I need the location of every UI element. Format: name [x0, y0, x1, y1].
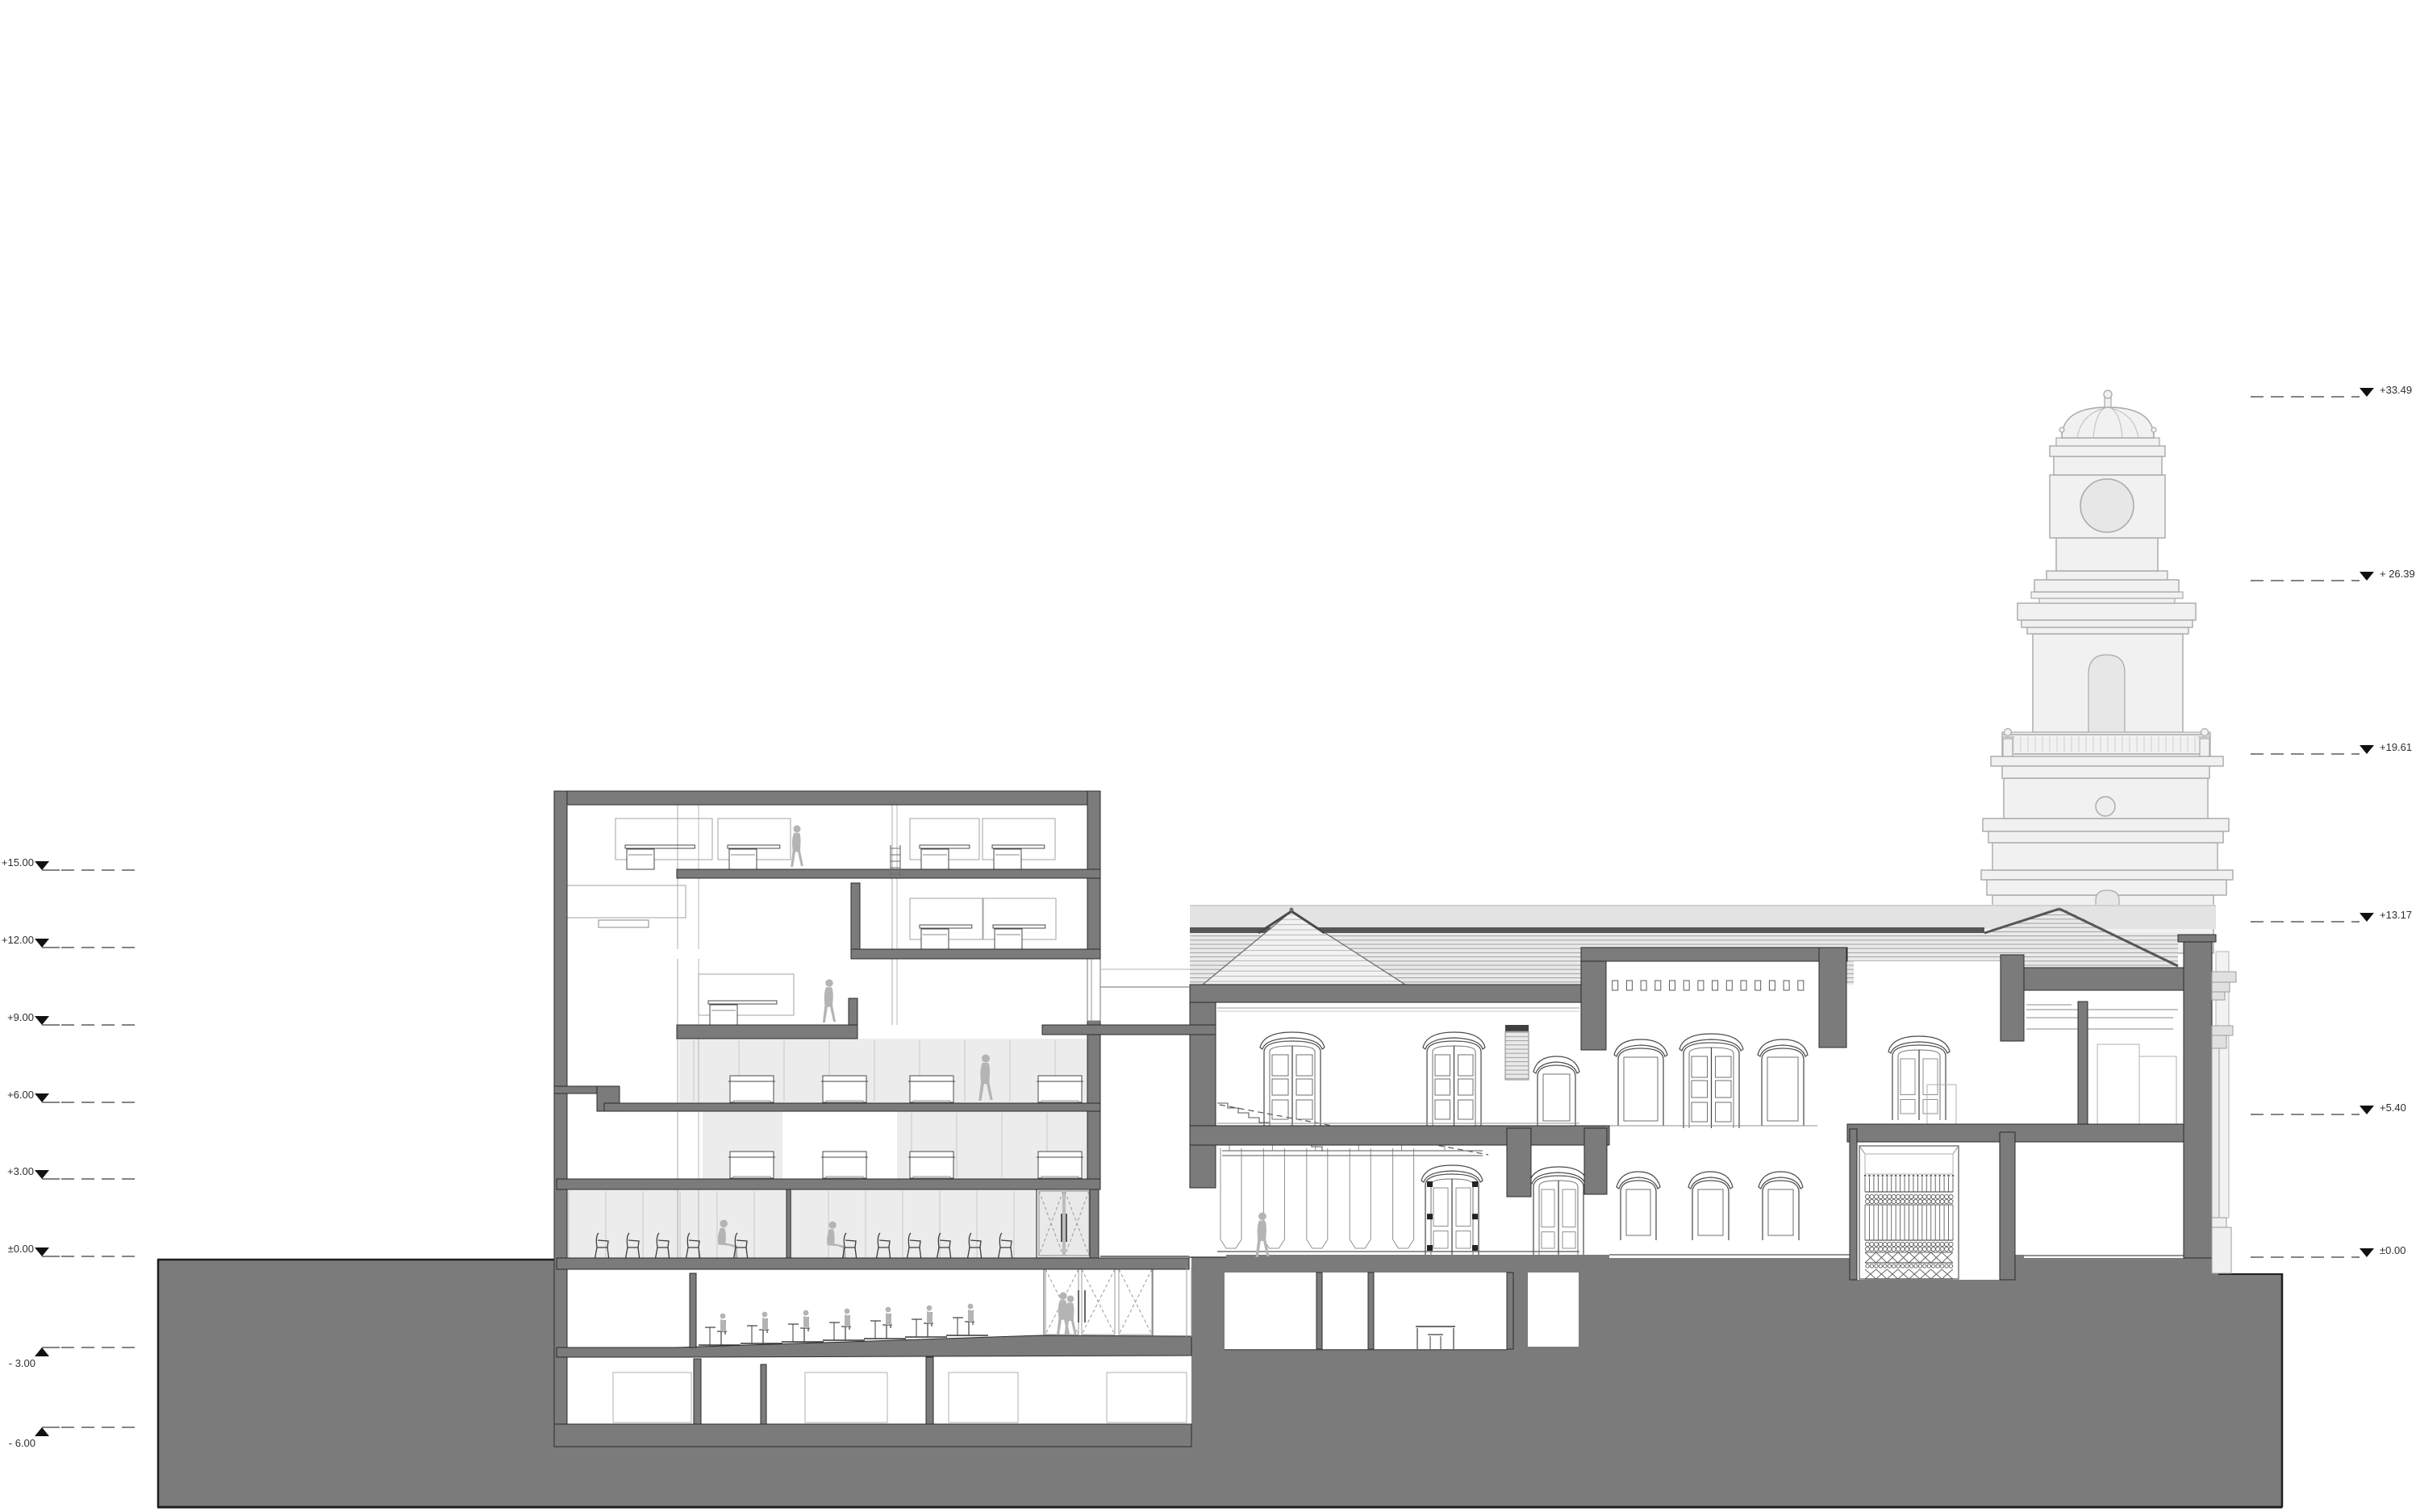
- svg-text:+6.00: +6.00: [7, 1089, 34, 1101]
- svg-text:+15.00: +15.00: [2, 856, 34, 868]
- svg-text:+33.49: +33.49: [2380, 384, 2412, 396]
- svg-text:±0.00: ±0.00: [8, 1243, 34, 1255]
- svg-text:- 6.00: - 6.00: [9, 1437, 35, 1449]
- svg-text:+19.61: +19.61: [2380, 741, 2412, 753]
- svg-text:+5.40: +5.40: [2380, 1102, 2406, 1114]
- svg-text:+ 26.39: + 26.39: [2380, 568, 2415, 580]
- svg-text:±0.00: ±0.00: [2380, 1244, 2405, 1256]
- svg-text:+9.00: +9.00: [7, 1011, 34, 1023]
- svg-text:+13.17: +13.17: [2380, 909, 2412, 921]
- svg-text:+3.00: +3.00: [7, 1165, 34, 1177]
- svg-text:+12.00: +12.00: [2, 934, 34, 946]
- svg-text:- 3.00: - 3.00: [9, 1357, 35, 1369]
